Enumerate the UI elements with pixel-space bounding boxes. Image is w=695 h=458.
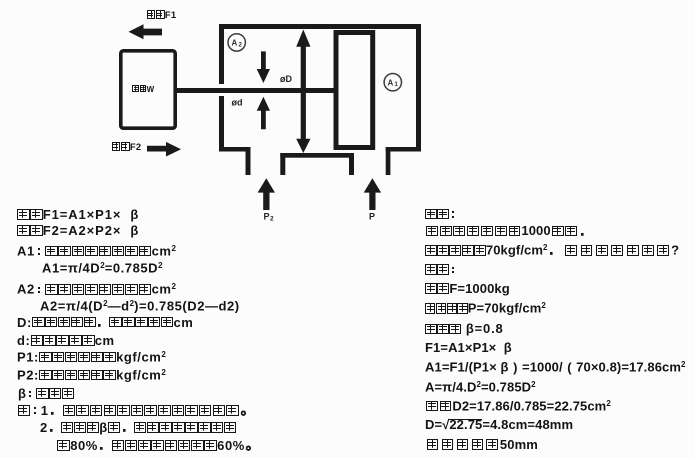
svg-text:P: P <box>369 212 375 222</box>
svg-text:A: A <box>232 39 238 48</box>
svg-text:2: 2 <box>270 216 274 223</box>
svg-text:A: A <box>388 78 394 87</box>
svg-text:øD: øD <box>280 74 292 84</box>
svg-text:2: 2 <box>239 42 243 48</box>
svg-text:P: P <box>264 212 270 222</box>
svg-text:1: 1 <box>395 82 399 88</box>
svg-text:ød: ød <box>232 98 243 108</box>
